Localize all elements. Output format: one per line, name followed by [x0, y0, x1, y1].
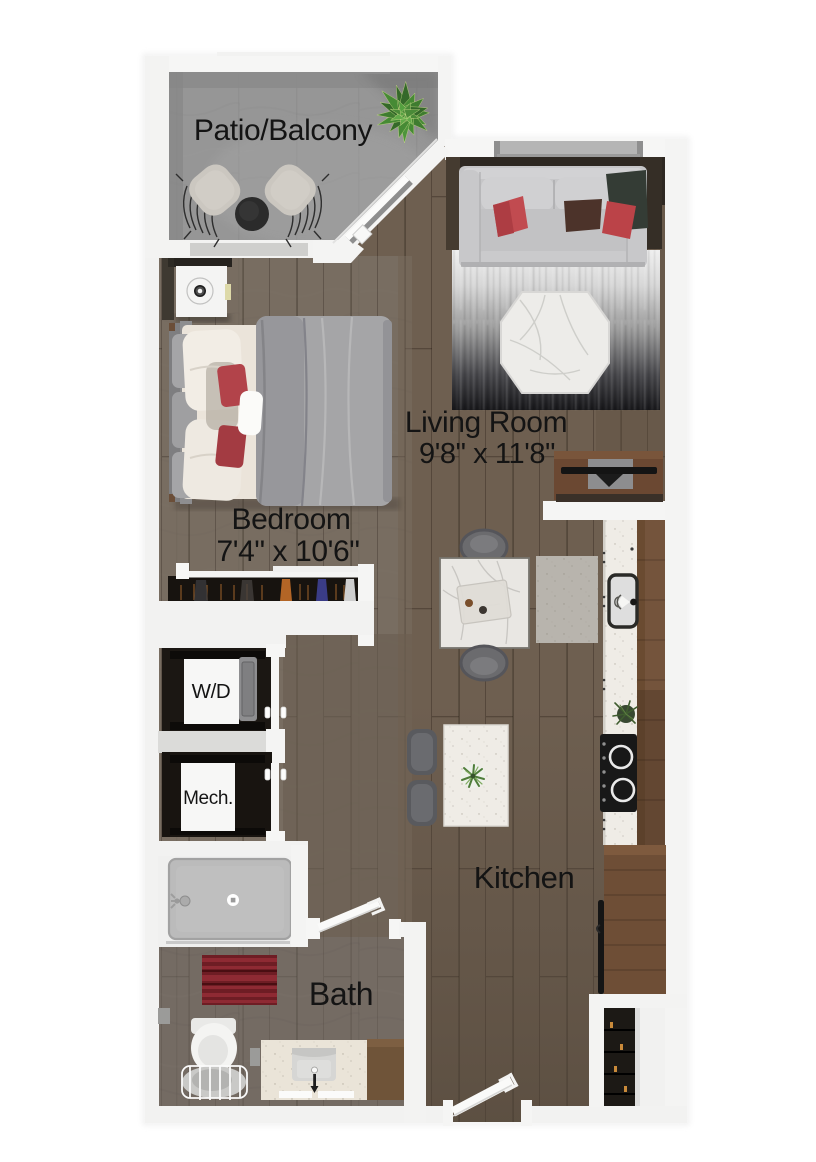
svg-text:Living Room: Living Room	[405, 406, 567, 439]
svg-text:Patio/Balcony: Patio/Balcony	[194, 114, 373, 147]
svg-text:Kitchen: Kitchen	[474, 860, 575, 895]
svg-text:7'4" x 10'6": 7'4" x 10'6"	[216, 535, 359, 568]
svg-text:Bedroom: Bedroom	[232, 503, 351, 536]
svg-text:Bath: Bath	[309, 976, 373, 1012]
svg-text:9'8" x 11'8": 9'8" x 11'8"	[419, 438, 555, 470]
svg-text:Mech.: Mech.	[183, 788, 233, 809]
svg-text:W/D: W/D	[192, 680, 231, 703]
